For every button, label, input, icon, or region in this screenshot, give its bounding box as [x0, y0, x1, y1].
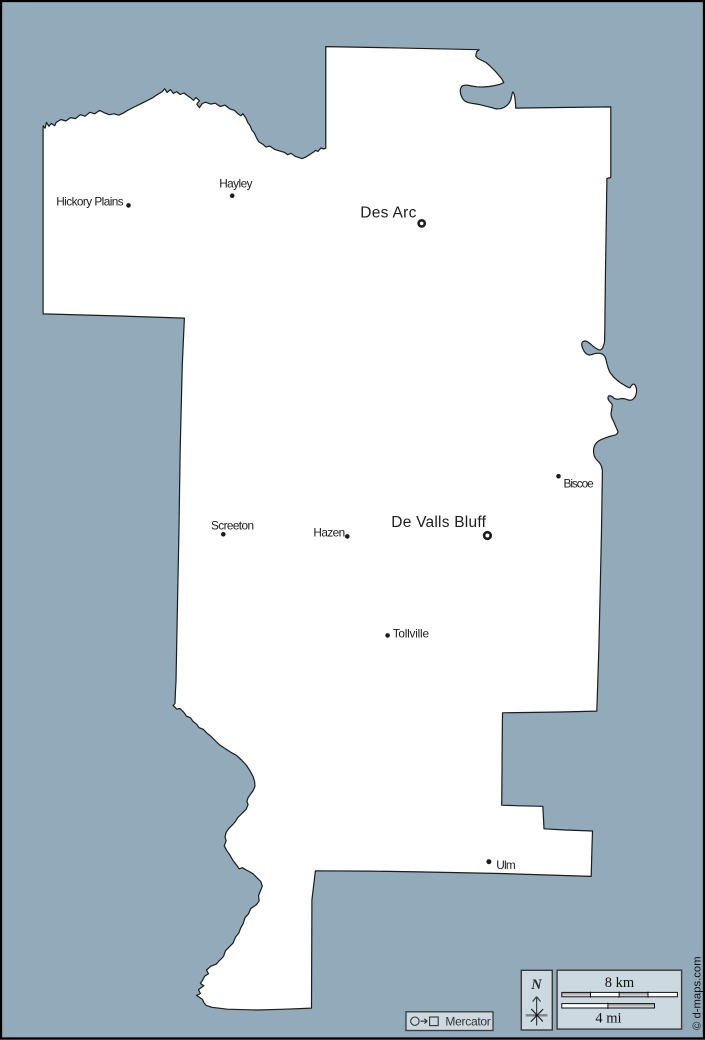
svg-text:Des Arc: Des Arc [360, 205, 416, 222]
svg-text:Tollville: Tollville [393, 627, 430, 641]
svg-text:Hickory Plains: Hickory Plains [56, 195, 124, 209]
svg-text:Screeton: Screeton [211, 519, 254, 533]
svg-text:Mercator: Mercator [445, 1015, 490, 1029]
svg-text:Hayley: Hayley [219, 177, 252, 191]
svg-text:Ulm: Ulm [496, 858, 516, 872]
svg-text:4 mi: 4 mi [595, 1011, 621, 1027]
svg-text:Biscoe: Biscoe [564, 477, 595, 491]
svg-text:8 km: 8 km [605, 975, 635, 991]
svg-text:De Valls Bluff: De Valls Bluff [391, 514, 486, 531]
svg-text:© d-maps.com: © d-maps.com [691, 956, 703, 1030]
svg-text:N: N [530, 977, 542, 993]
svg-text:Hazen: Hazen [313, 526, 345, 540]
